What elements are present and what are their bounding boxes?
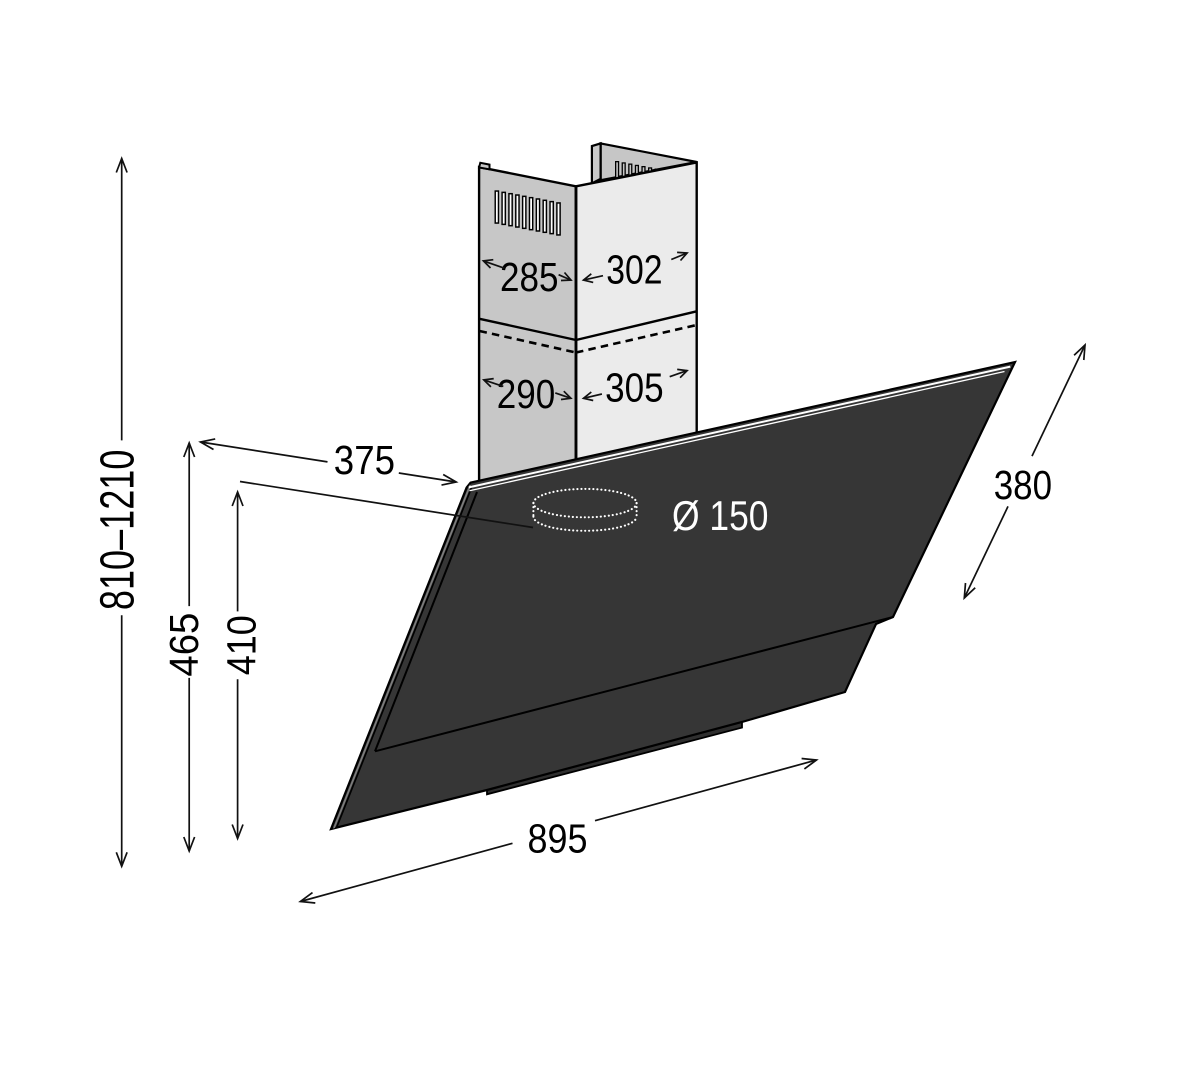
svg-text:410: 410 [218, 615, 264, 675]
svg-text:Ø 150: Ø 150 [672, 492, 769, 539]
svg-text:305: 305 [605, 365, 664, 411]
svg-text:285: 285 [500, 254, 559, 300]
svg-text:895: 895 [528, 816, 588, 862]
svg-text:375: 375 [334, 437, 395, 483]
svg-text:810–1210: 810–1210 [92, 450, 145, 611]
svg-text:380: 380 [994, 462, 1052, 508]
svg-text:465: 465 [161, 613, 207, 677]
svg-text:290: 290 [497, 371, 556, 417]
svg-text:302: 302 [606, 246, 662, 292]
